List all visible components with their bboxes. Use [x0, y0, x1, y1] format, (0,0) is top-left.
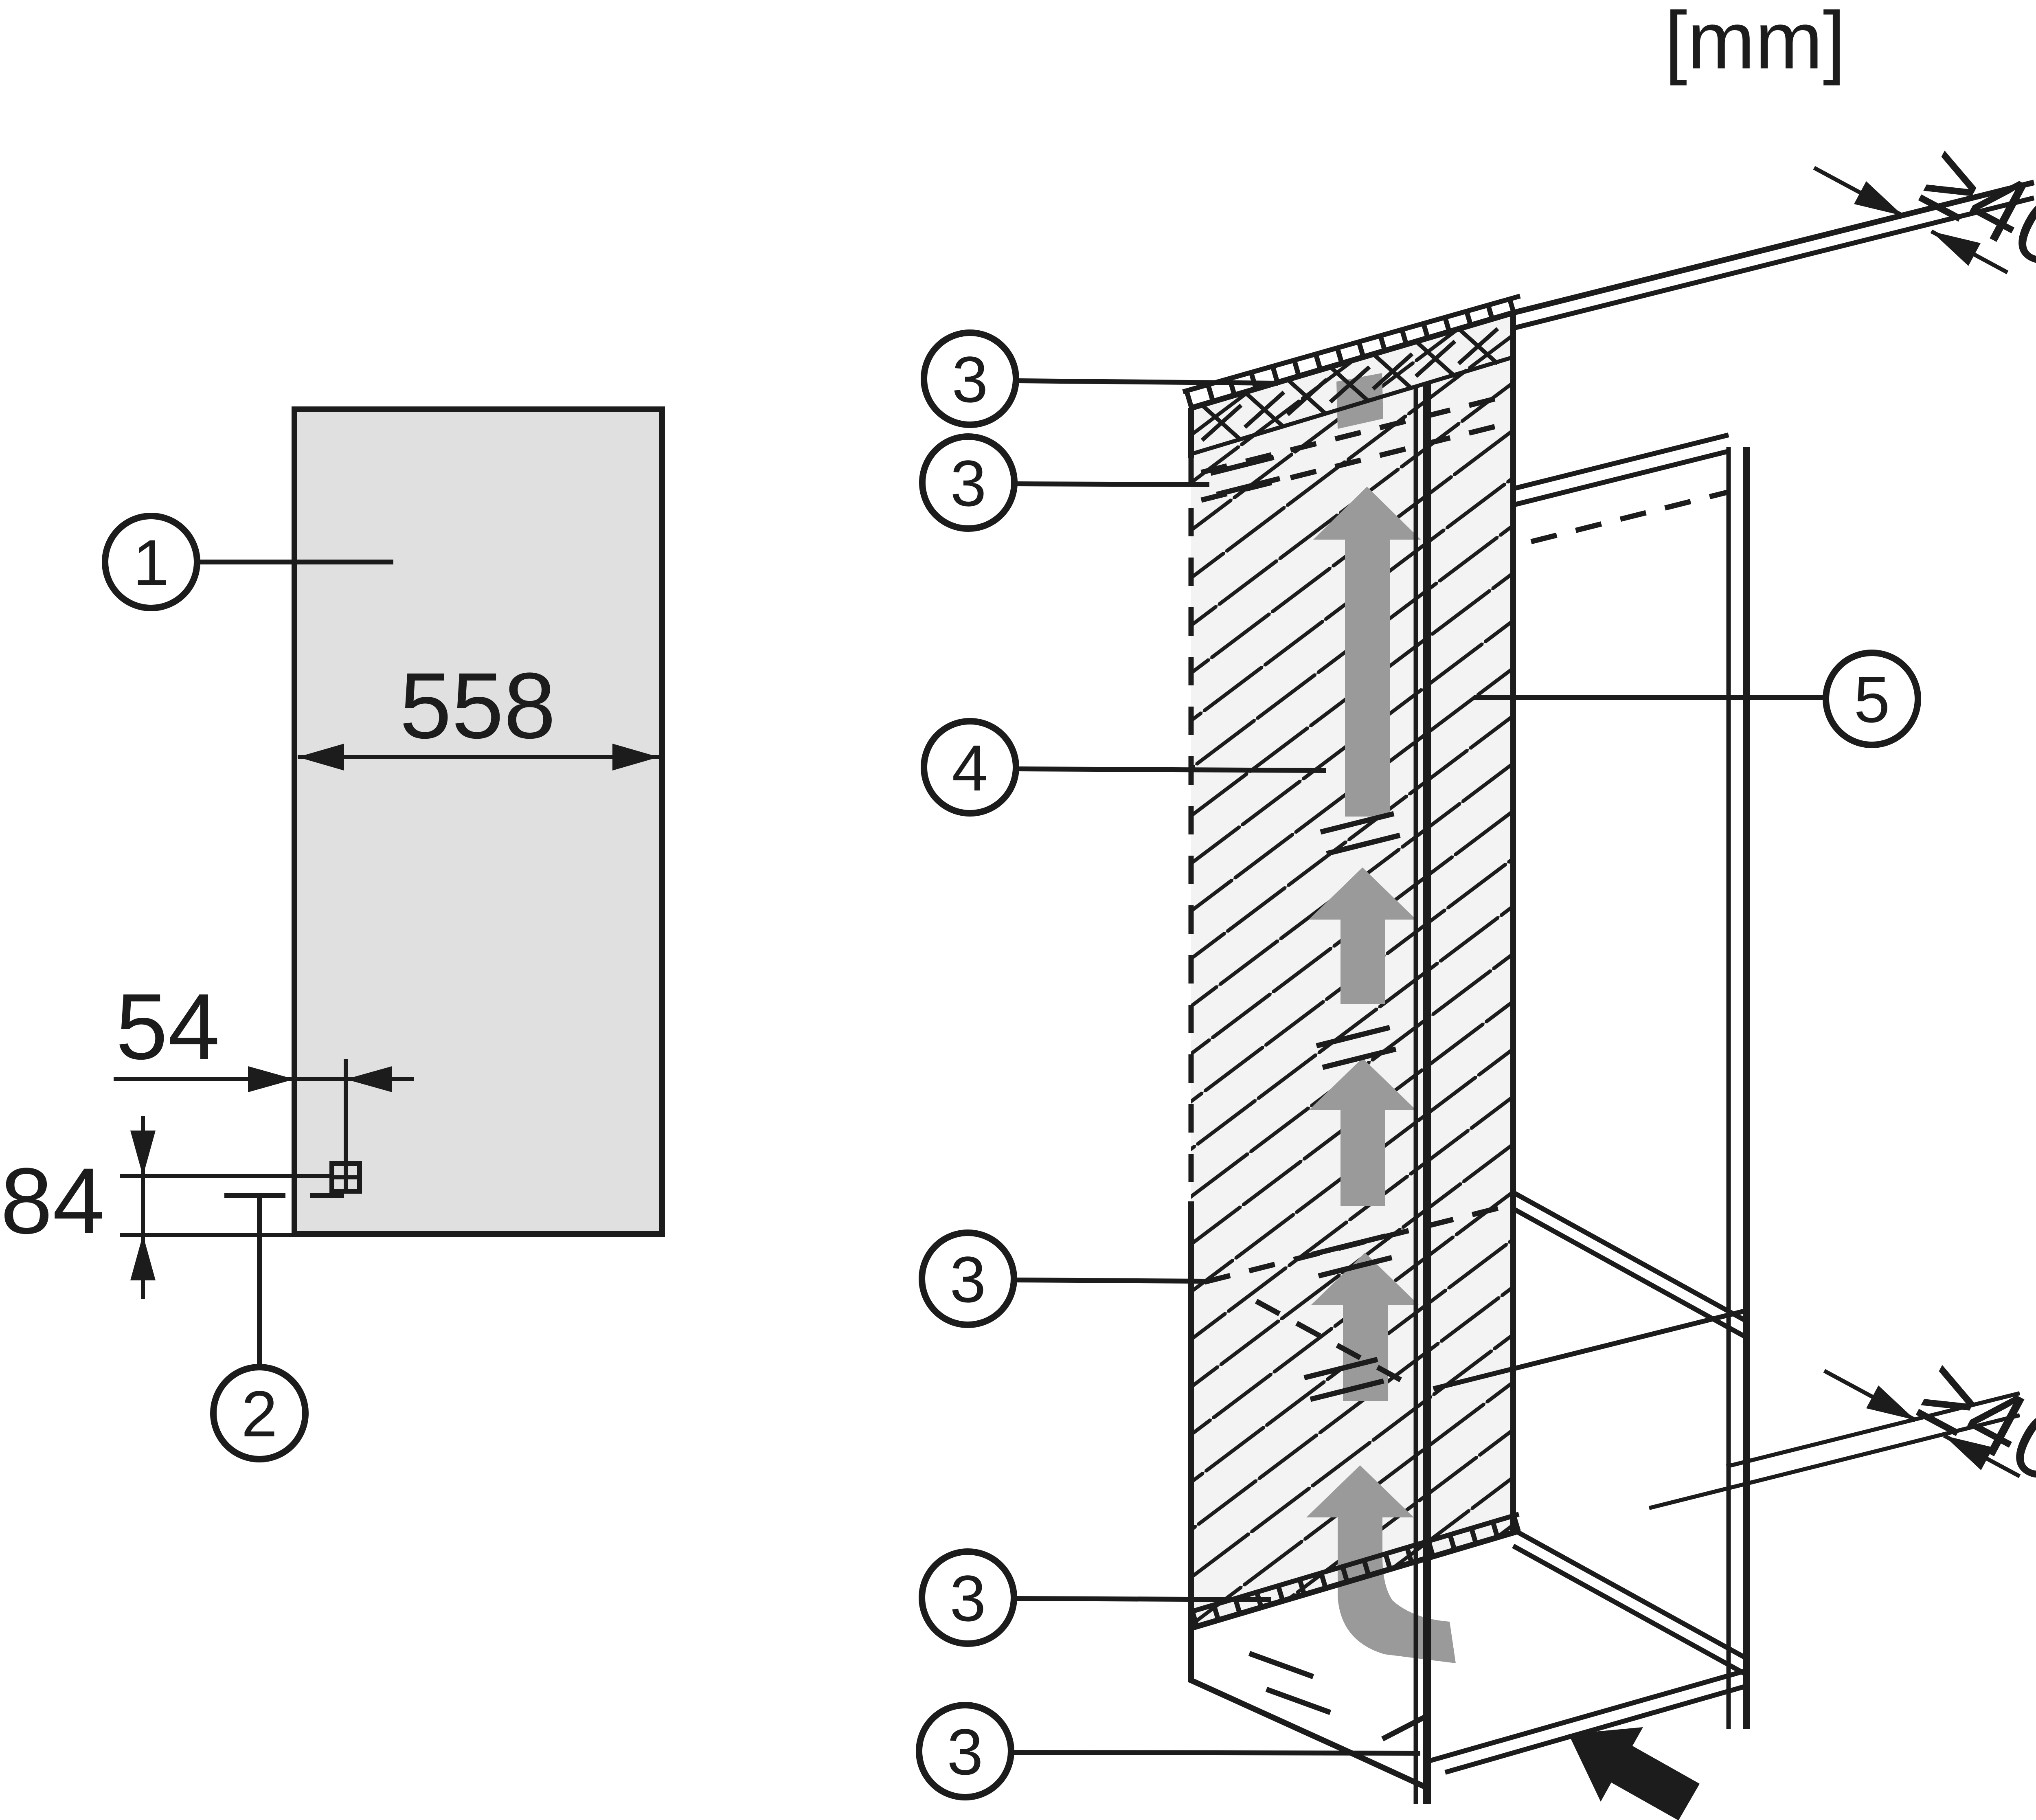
manual-page: 1 558 54 84 — [0, 0, 2036, 1820]
installation-diagram-svg: 1 558 54 84 — [0, 0, 2036, 1820]
units-label: [mm] — [1665, 0, 1845, 86]
callout-3d-leader — [1015, 1598, 1271, 1600]
svg-text:5: 5 — [1854, 663, 1890, 736]
callout-3-top-b: 3 — [922, 437, 1209, 529]
callout-5: 5 — [1474, 653, 1918, 745]
svg-text:3: 3 — [950, 1243, 986, 1316]
callout-3e-leader — [1012, 1752, 1420, 1753]
callout-3b-leader — [1016, 484, 1209, 485]
svg-text:3: 3 — [950, 447, 987, 520]
svg-text:4: 4 — [952, 731, 988, 804]
callout-2-label: 2 — [241, 1377, 278, 1450]
callout-3c-leader — [1015, 1280, 1204, 1281]
base-height-dimension: 84 — [0, 1116, 330, 1299]
width-dimension-label: 558 — [399, 653, 556, 758]
air-intake-arrow — [1569, 1727, 1700, 1820]
top-clearance-label: ≥40 — [1906, 124, 2036, 290]
callout-4-leader — [1018, 769, 1326, 771]
niche-floor-edge — [1513, 1530, 1746, 1658]
callout-3-plinth: 3 — [919, 1705, 1420, 1797]
housing-isometric-view: ≥40 ≥40 3 3 4 — [919, 124, 2036, 1820]
base-arrowhead-up — [130, 1235, 156, 1280]
callout-1-label: 1 — [133, 526, 169, 599]
svg-text:3: 3 — [950, 1562, 986, 1635]
side-wall-section — [1181, 296, 1523, 1804]
door-panel-rect — [294, 409, 662, 1234]
callout-3-mid: 3 — [922, 1233, 1204, 1325]
rear-clearance-label: ≥40 — [1904, 1339, 2036, 1504]
base-height-label: 84 — [0, 1148, 105, 1253]
callout-3a-leader — [1017, 381, 1278, 383]
niche-cutout-view: 1 558 54 84 — [0, 409, 662, 1459]
top-clearance-dimension: ≥40 — [1814, 124, 2036, 290]
hinge-offset-label: 54 — [116, 974, 220, 1079]
svg-text:3: 3 — [947, 1715, 983, 1788]
base-arrowhead-down — [130, 1131, 156, 1176]
rear-clearance-dimension: ≥40 — [1649, 1339, 2036, 1508]
hinge-arrowhead-right — [248, 1066, 294, 1092]
mid-shelf-front-edge — [1513, 1192, 1746, 1321]
svg-text:3: 3 — [952, 343, 988, 416]
